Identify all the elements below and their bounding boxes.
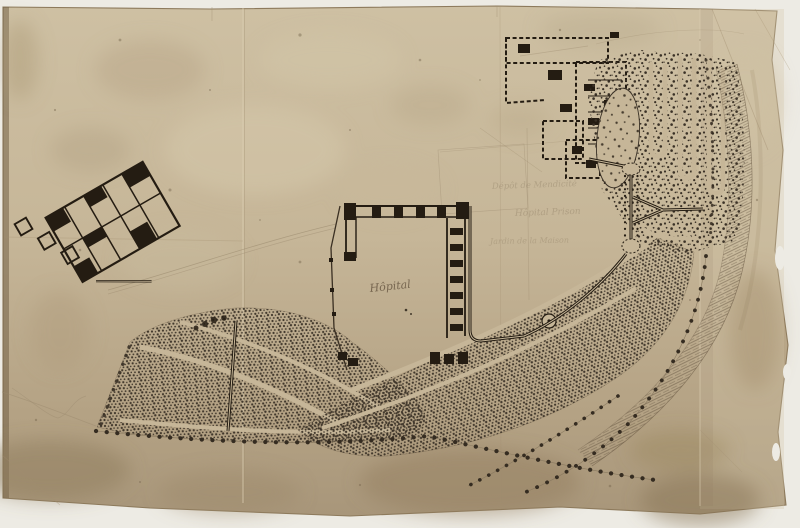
faint-annotation-3: Jardin de la Maison bbox=[488, 236, 569, 246]
scanned-plan: Hôpital Dépôt de Mendicité Hôpital Priso… bbox=[0, 0, 800, 528]
plan-canvas: Hôpital Dépôt de Mendicité Hôpital Priso… bbox=[0, 0, 800, 528]
faint-annotation-2: Hôpital Prison bbox=[514, 206, 581, 219]
